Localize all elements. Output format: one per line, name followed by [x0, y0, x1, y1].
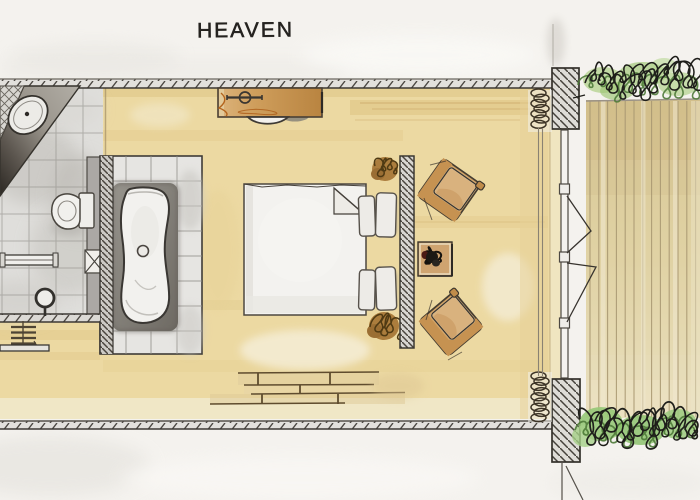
svg-text:HEAVEN: HEAVEN: [197, 18, 294, 42]
